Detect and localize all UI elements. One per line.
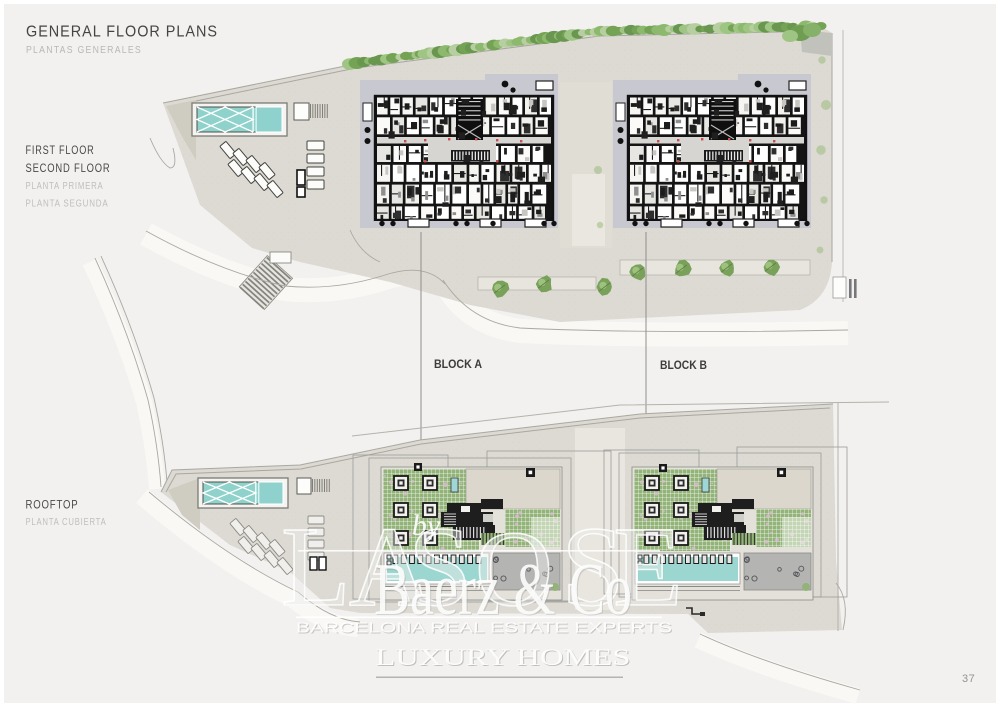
svg-text:by: by — [412, 509, 441, 542]
svg-text:BLOCK A: BLOCK A — [434, 359, 482, 371]
svg-text:BLOCK B: BLOCK B — [660, 360, 707, 372]
svg-text:L: L — [281, 503, 351, 630]
svg-text:BARCELONA REAL ESTATE EXPERTS: BARCELONA REAL ESTATE EXPERTS — [296, 621, 672, 637]
svg-text:Baerz & Co: Baerz & Co — [374, 549, 632, 631]
svg-text:PLANTA PRIMERA: PLANTA PRIMERA — [26, 181, 104, 192]
svg-text:GENERAL FLOOR PLANS: GENERAL FLOOR PLANS — [26, 24, 218, 41]
svg-text:SECOND FLOOR: SECOND FLOOR — [26, 163, 111, 175]
svg-text:LUXURY HOMES: LUXURY HOMES — [376, 645, 631, 671]
svg-text:PLANTA CUBIERTA: PLANTA CUBIERTA — [26, 517, 107, 528]
svg-text:PLANTA SEGUNDA: PLANTA SEGUNDA — [26, 199, 109, 210]
svg-text:PLANTAS GENERALES: PLANTAS GENERALES — [26, 44, 142, 56]
svg-text:FIRST FLOOR: FIRST FLOOR — [26, 145, 95, 157]
svg-text:37: 37 — [962, 673, 975, 685]
svg-text:ROOFTOP: ROOFTOP — [26, 500, 79, 512]
